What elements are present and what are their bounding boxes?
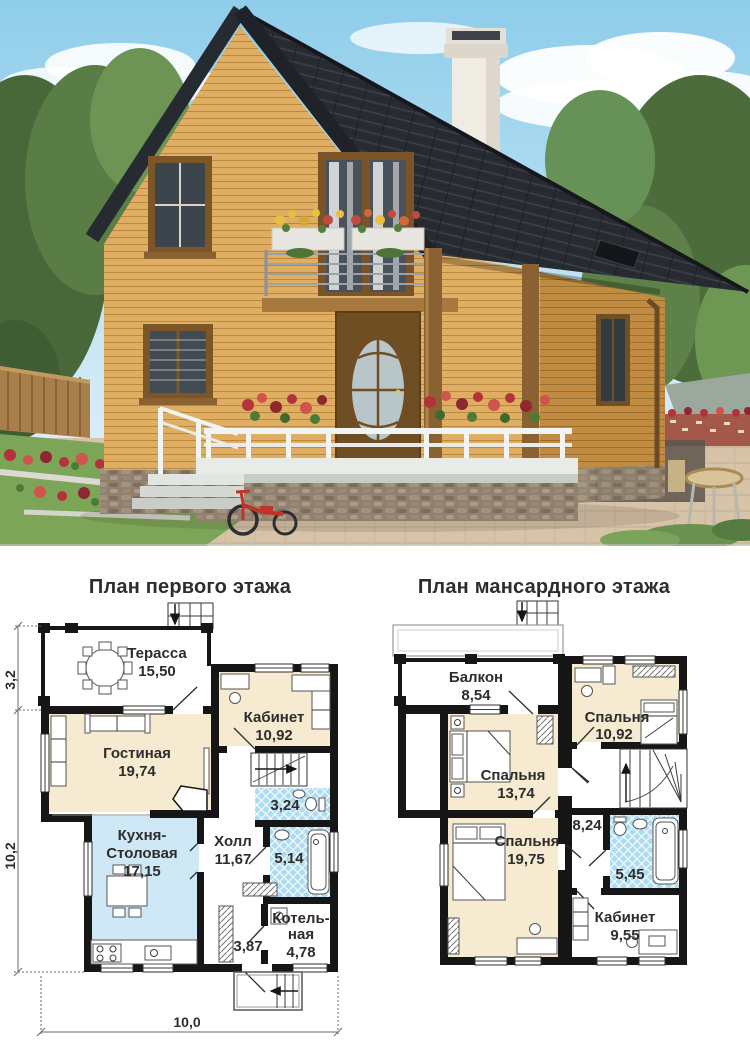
side-window <box>596 314 630 406</box>
office-attic-furniture <box>573 898 677 954</box>
roof-outline <box>393 625 563 656</box>
label-bedroom-mid: Спальня <box>481 767 546 784</box>
first-floor-plan: 3,2 10,2 10,0 Терасса 15,50 Гостиная 19,… <box>5 598 350 1041</box>
living-window <box>139 324 217 405</box>
corner-post <box>522 264 539 468</box>
garden-chair <box>668 460 685 492</box>
label-hall: Холл <box>214 833 252 850</box>
area-hall: 11,67 <box>215 851 252 868</box>
area-boiler: 4,78 <box>286 944 315 961</box>
label-boiler-2: ная <box>288 926 314 943</box>
hall-wardrobe <box>243 883 277 896</box>
area-hall-attic: 8,24 <box>572 817 602 834</box>
bedroom-mid-door-gap <box>558 768 572 796</box>
area-bathroom-attic: 5,45 <box>615 866 644 883</box>
first-floor-title: План первого этажа <box>35 576 345 599</box>
front-door <box>336 312 420 462</box>
area-living: 19,74 <box>118 763 156 780</box>
attic-floor-plan: Балкон 8,54 Спальня 10,92 Спальня 13,74 … <box>385 598 695 998</box>
area-bathroom: 5,14 <box>274 850 304 867</box>
area-terrace: 15,50 <box>138 663 176 680</box>
label-boiler-1: Котель- <box>272 910 329 927</box>
label-kitchen-2: Столовая <box>106 845 177 862</box>
label-kitchen-1: Кухня- <box>118 827 167 844</box>
area-bedroom-large: 19,75 <box>507 851 545 868</box>
area-bedroom-mid: 13,74 <box>497 785 535 802</box>
label-living: Гостиная <box>103 745 171 762</box>
porch-foundation <box>196 483 578 521</box>
area-balcony: 8,54 <box>461 687 491 704</box>
corridor-closet <box>219 906 233 962</box>
label-office: Кабинет <box>244 709 305 726</box>
area-corridor: 3,87 <box>233 938 262 955</box>
house-photo <box>0 0 750 546</box>
label-terrace: Терасса <box>127 645 187 662</box>
dim-house-width: 10,0 <box>173 1014 200 1030</box>
area-bedroom-small: 10,92 <box>595 726 633 743</box>
attic-window <box>144 156 216 259</box>
area-wc: 3,24 <box>270 797 300 814</box>
page: План первого этажа План мансардного этаж… <box>0 0 750 1041</box>
label-office-attic: Кабинет <box>595 909 656 926</box>
dim-terrace-depth: 3,2 <box>5 670 18 690</box>
terrace-table <box>78 642 132 694</box>
entry-stairs-top-attic <box>517 601 558 625</box>
entry-porch <box>234 972 302 1010</box>
area-office-attic: 9,55 <box>610 927 639 944</box>
stairs <box>251 753 307 786</box>
label-bedroom-large: Спальня <box>495 833 560 850</box>
label-balcony: Балкон <box>449 669 503 686</box>
house-photo-svg <box>0 0 750 546</box>
dim-house-depth: 10,2 <box>5 842 18 869</box>
area-office: 10,92 <box>255 727 293 744</box>
label-bedroom-small: Спальня <box>585 709 650 726</box>
stairs-attic <box>620 749 687 808</box>
attic-floor-title: План мансардного этажа <box>388 576 700 599</box>
area-kitchen: 17,15 <box>123 863 161 880</box>
